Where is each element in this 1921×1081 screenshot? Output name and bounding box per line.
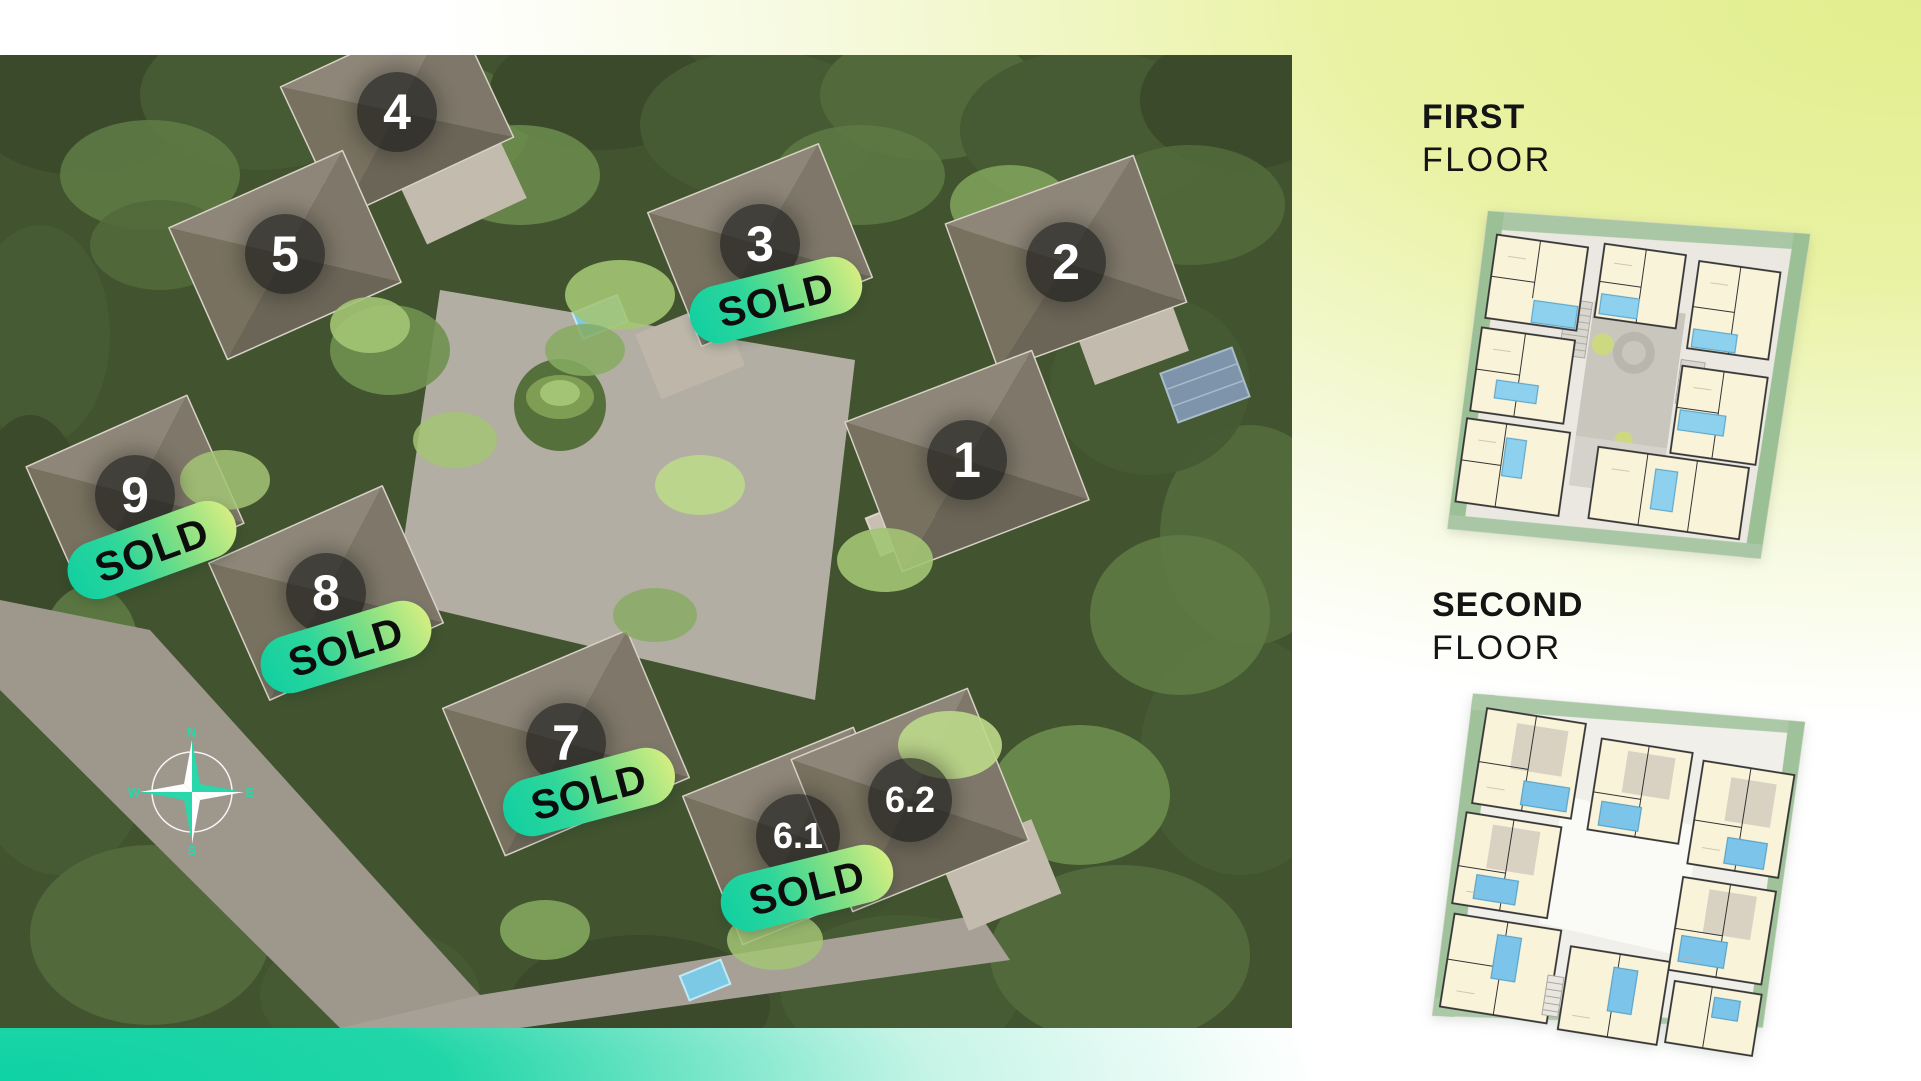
first-floor-plan [1435,180,1817,579]
second-floor-heading: SECOND FLOOR [1432,584,1583,670]
second-floor-heading-line2: FLOOR [1432,627,1583,670]
villa-marker-label: 8 [312,564,340,622]
villa-marker-label: 6.2 [885,779,935,821]
second-floor-heading-line1: SECOND [1432,584,1583,627]
villa-marker-label: 2 [1052,233,1080,291]
villa-marker-6-2[interactable]: 6.2 [868,758,952,842]
villa-marker-1[interactable]: 1 [927,420,1007,500]
villa-marker-4[interactable]: 4 [357,72,437,152]
villa-marker-label: 9 [121,466,149,524]
villa-marker-label: 1 [953,431,981,489]
compass-rose-icon: N E S W [127,727,257,857]
master-plan-page: N E S W 4 5 3 2 1 9 8 7 6.1 6.2 SOLD SOL… [0,0,1921,1081]
villa-marker-label: 3 [746,215,774,273]
villa-marker-label: 7 [552,714,580,772]
first-floor-heading-line1: FIRST [1422,96,1552,139]
compass-north-label: N [187,727,196,740]
villa-marker-label: 5 [271,225,299,283]
second-floor-plan [1408,658,1821,1074]
villa-marker-5[interactable]: 5 [245,214,325,294]
compass-west-label: W [128,785,141,800]
first-floor-heading: FIRST FLOOR [1422,96,1552,182]
villa-marker-2[interactable]: 2 [1026,222,1106,302]
compass-south-label: S [188,843,197,857]
villa-marker-label: 6.1 [773,815,823,857]
villa-marker-label: 4 [383,83,411,141]
compass-east-label: E [246,785,255,800]
first-floor-heading-line2: FLOOR [1422,139,1552,182]
